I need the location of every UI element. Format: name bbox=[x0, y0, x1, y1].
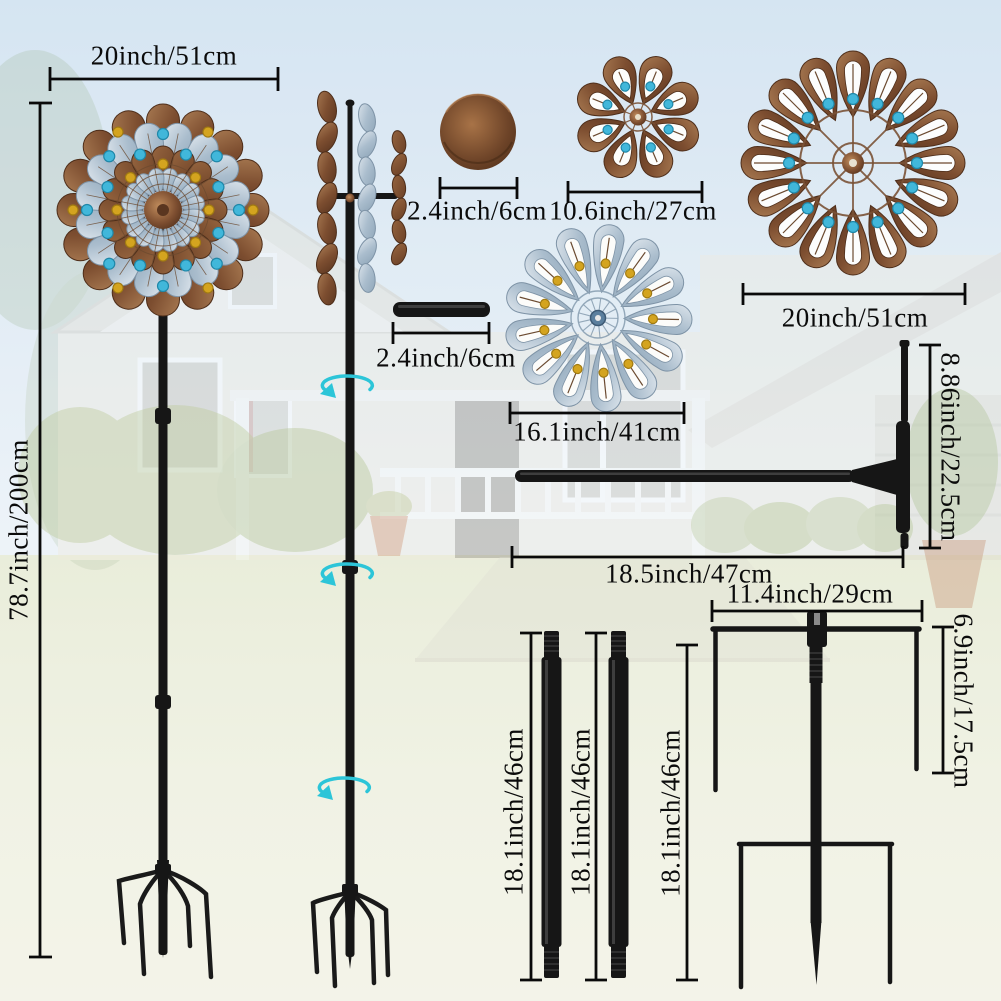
front-spinner bbox=[57, 104, 269, 316]
dim-stake-width-label: 11.4inch/29cm bbox=[727, 581, 894, 608]
dim-blue-spinner-label: 16.1inch/41cm bbox=[513, 419, 681, 446]
dim-total-height-label: 78.7inch/200cm bbox=[6, 439, 33, 621]
dim-stake-fork-label: 6.9inch/17.5cm bbox=[950, 614, 977, 789]
dim-small-flower-label: 10.6inch/27cm bbox=[549, 198, 717, 225]
dim-pole-a-label: 18.1inch/46cm bbox=[501, 728, 528, 896]
dim-tube-label: 2.4inch/6cm bbox=[376, 345, 516, 372]
pole-section-b bbox=[609, 631, 629, 978]
dim-stake-spike-label: 18.1inch/46cm bbox=[658, 729, 685, 897]
dim-head-width-label: 20inch/51cm bbox=[91, 43, 237, 70]
product-dimension-diagram: 20inch/51cm 78.7inch/200cm 2.4inch/6cm 1… bbox=[0, 0, 1001, 1001]
pole-section-a bbox=[542, 631, 562, 978]
dim-pole-b-label: 18.1inch/46cm bbox=[568, 728, 595, 896]
large-spinner bbox=[741, 51, 965, 275]
dim-large-spinner-label: 20inch/51cm bbox=[782, 305, 928, 332]
dim-t-rod-height-label: 8.86inch/22.5cm bbox=[937, 353, 964, 542]
copper-cap bbox=[440, 94, 516, 170]
connector-tube bbox=[393, 302, 490, 317]
dim-cap-label: 2.4inch/6cm bbox=[407, 198, 547, 225]
